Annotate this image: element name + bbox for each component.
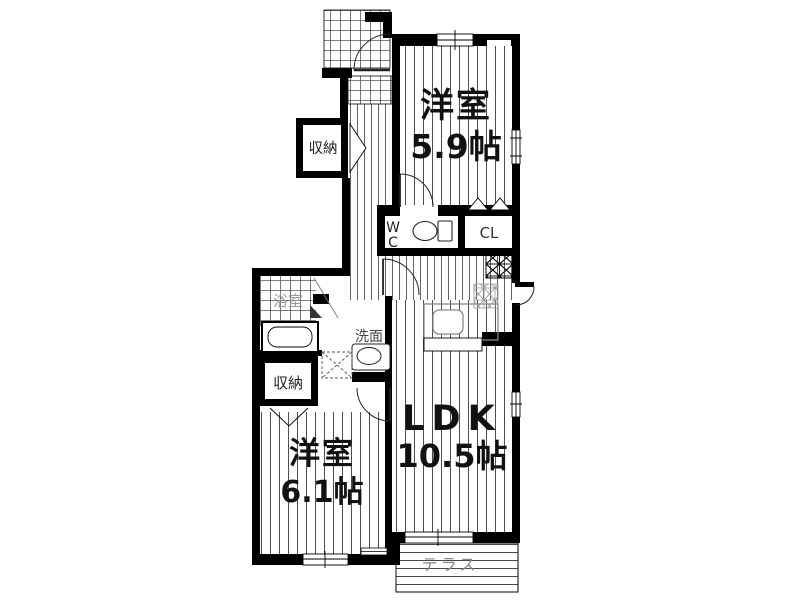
refrigerator-space-icon	[486, 254, 513, 278]
wall-segment	[473, 532, 520, 543]
floor-plan-canvas: 洋室 5.9帖 LDK 10.5帖 洋室 6.1帖 W C CL 収納 収納 浴…	[0, 0, 800, 600]
washstand-label: 洗面	[355, 329, 383, 345]
bedroom-b-name: 洋室	[289, 436, 355, 472]
wc-label-line2: C	[388, 235, 398, 251]
floor-plan: 洋室 5.9帖 LDK 10.5帖 洋室 6.1帖 W C CL 収納 収納 浴…	[0, 0, 800, 600]
wall-segment	[458, 216, 465, 248]
ldk-name: LDK	[402, 399, 501, 439]
toilet-icon	[413, 221, 452, 241]
bedroom-a-name: 洋室	[420, 86, 492, 126]
wall-segment	[392, 532, 405, 543]
wall-segment	[512, 303, 520, 392]
window-bedroom-a-right	[510, 130, 522, 164]
wall-segment	[252, 268, 350, 276]
terrace-label: テラス	[422, 555, 479, 574]
appliance-space-icon	[474, 284, 498, 308]
window-ldk-right	[510, 392, 522, 417]
wall-segment	[512, 34, 520, 130]
wall-segment	[342, 178, 350, 268]
window-slot	[361, 548, 387, 555]
bathtub-icon	[262, 322, 318, 352]
hallway-floor-mid	[348, 205, 377, 256]
wall-segment	[252, 268, 260, 565]
entrance-hall-tile	[348, 76, 392, 104]
closet-label: CL	[480, 224, 499, 242]
wall-segment	[385, 296, 392, 532]
washstand-sink-icon	[352, 344, 390, 370]
wall-notch	[487, 40, 511, 46]
wall-segment	[252, 554, 303, 565]
bedroom-b-size: 6.1帖	[280, 475, 363, 510]
storage-upper-label: 収納	[309, 140, 338, 157]
storage-lower-label: 収納	[273, 374, 303, 392]
ldk-size: 10.5帖	[397, 437, 508, 475]
washer-pan-icon	[322, 352, 352, 378]
wall-segment	[348, 554, 400, 565]
wc-label-line1: W	[386, 220, 400, 236]
bath-label: 浴室	[273, 292, 303, 310]
wall-segment	[322, 68, 352, 78]
wall-segment	[512, 417, 520, 540]
bedroom-a-size: 5.9帖	[410, 127, 501, 166]
wall-segment	[392, 34, 400, 216]
